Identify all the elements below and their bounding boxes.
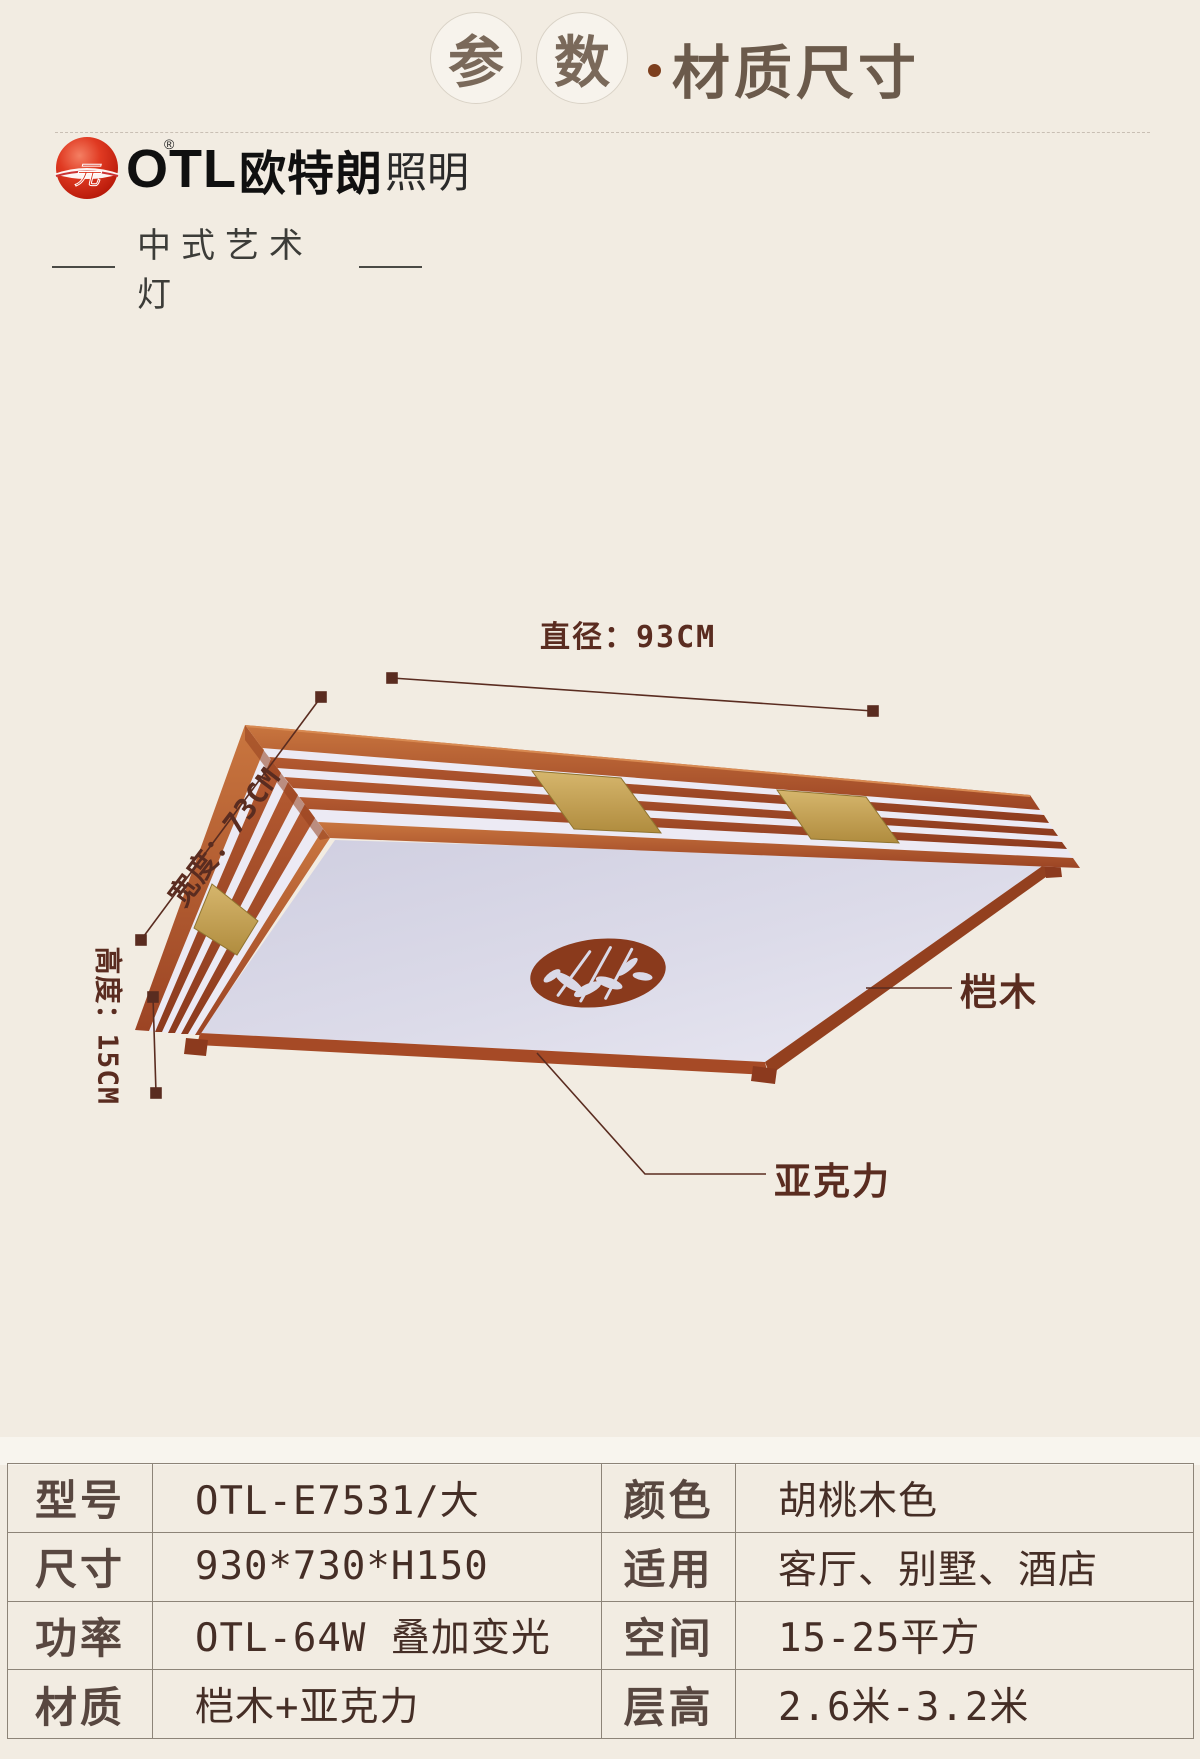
spec-key-model: 型号 <box>8 1464 153 1533</box>
header-circle-1: 参 <box>430 12 522 104</box>
spec-key-space: 空间 <box>602 1601 736 1670</box>
brand-tagline: 中式艺术灯 <box>52 218 422 316</box>
brand-mark-char: 元 <box>74 161 102 190</box>
dimension-lines <box>136 673 952 1174</box>
table-row: 材质 桤木+亚克力 层高 2.6米-3.2米 <box>8 1670 1194 1739</box>
brand-name-latin: OTL <box>126 138 237 200</box>
spec-key-power: 功率 <box>8 1601 153 1670</box>
wood-material-label: 桤木 <box>960 962 1038 1016</box>
table-background-strip <box>0 1437 1200 1465</box>
diameter-dimension-label: 直径：93CM <box>540 612 716 656</box>
spec-value-space: 15-25平方 <box>736 1601 1194 1670</box>
brand-row: 元 OTL 欧特朗 照明 <box>52 134 472 204</box>
spec-value-height: 2.6米-3.2米 <box>736 1670 1194 1739</box>
page-title: 材质尺寸 <box>672 26 920 110</box>
spec-value-material: 桤木+亚克力 <box>153 1670 602 1739</box>
spec-value-power: OTL-64W 叠加变光 <box>153 1601 602 1670</box>
table-row: 功率 OTL-64W 叠加变光 空间 15-25平方 <box>8 1601 1194 1670</box>
spec-key-color: 颜色 <box>602 1464 736 1533</box>
brand-sphere-icon: 元 <box>52 134 122 204</box>
brand-logo: ® 元 OTL 欧特朗 照明 中式艺术灯 <box>52 134 472 316</box>
tagline-dash-right <box>359 266 422 269</box>
width-dimension-label: 宽度：73CM <box>157 705 329 914</box>
spec-value-model: OTL-E7531/大 <box>153 1464 602 1533</box>
header-dot-icon <box>648 64 661 77</box>
tagline-text: 中式艺术灯 <box>137 218 347 316</box>
spec-key-height: 层高 <box>602 1670 736 1739</box>
spec-key-size: 尺寸 <box>8 1532 153 1601</box>
brand-name-suffix: 照明 <box>385 139 469 200</box>
header-divider <box>55 132 1150 133</box>
spec-key-usage: 适用 <box>602 1532 736 1601</box>
product-spec-page: 参 数 材质尺寸 ® 元 <box>0 0 1200 1759</box>
spec-key-material: 材质 <box>8 1670 153 1739</box>
header-circle-char-2: 数 <box>554 18 610 99</box>
bamboo-medallion <box>527 932 669 1014</box>
spec-value-size: 930*730*H150 <box>153 1532 602 1601</box>
tagline-dash-left <box>52 266 115 269</box>
registered-mark: ® <box>164 136 174 152</box>
acrylic-material-label: 亚克力 <box>774 1151 891 1205</box>
spec-value-usage: 客厅、别墅、酒店 <box>736 1532 1194 1601</box>
spec-table: 型号 OTL-E7531/大 颜色 胡桃木色 尺寸 930*730*H150 适… <box>7 1463 1194 1739</box>
height-dimension-label: 高度：15CM <box>90 947 130 1162</box>
brand-name-cn: 欧特朗 <box>239 135 383 204</box>
header-circle-2: 数 <box>536 12 628 104</box>
header-circle-char-1: 参 <box>448 18 504 99</box>
table-row: 型号 OTL-E7531/大 颜色 胡桃木色 <box>8 1464 1194 1533</box>
spec-value-color: 胡桃木色 <box>736 1464 1194 1533</box>
table-row: 尺寸 930*730*H150 适用 客厅、别墅、酒店 <box>8 1532 1194 1601</box>
